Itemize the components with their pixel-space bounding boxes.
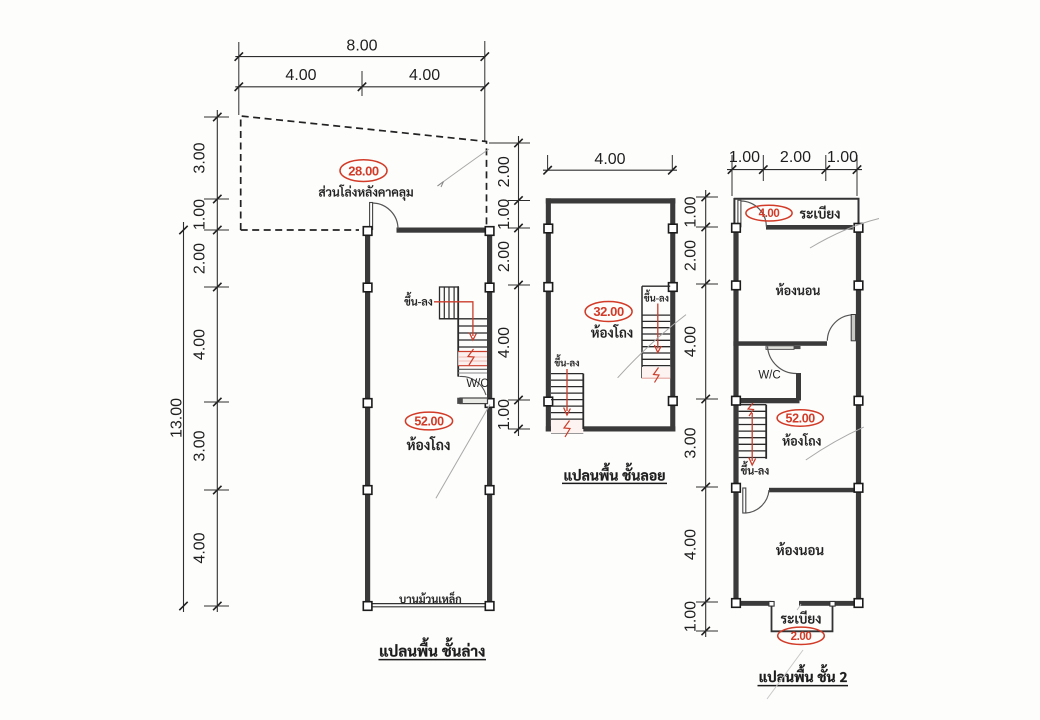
svg-text:1.00: 1.00: [729, 149, 760, 166]
svg-text:2.00: 2.00: [496, 156, 513, 187]
svg-text:4.00: 4.00: [759, 208, 780, 220]
svg-text:3.00: 3.00: [192, 430, 209, 461]
svg-text:1.00: 1.00: [496, 399, 513, 430]
svg-text:4.00: 4.00: [285, 67, 316, 84]
svg-text:1.00: 1.00: [192, 199, 209, 230]
svg-text:4.00: 4.00: [496, 327, 513, 358]
svg-text:2.00: 2.00: [791, 631, 812, 643]
svg-text:2.00: 2.00: [683, 240, 700, 271]
svg-text:52.00: 52.00: [414, 415, 444, 429]
svg-text:3.00: 3.00: [683, 427, 700, 458]
svg-text:W/C: W/C: [758, 370, 780, 382]
svg-text:1.00: 1.00: [827, 149, 858, 166]
svg-text:28.00: 28.00: [348, 163, 379, 178]
svg-text:1.00: 1.00: [496, 199, 513, 230]
svg-text:52.00: 52.00: [786, 412, 816, 426]
svg-text:4.00: 4.00: [409, 67, 440, 84]
svg-text:32.00: 32.00: [593, 304, 624, 319]
svg-text:13.00: 13.00: [169, 398, 186, 438]
svg-text:2.00: 2.00: [496, 241, 513, 272]
svg-text:2.00: 2.00: [780, 149, 811, 166]
svg-text:1.00: 1.00: [683, 601, 700, 632]
svg-text:2.00: 2.00: [192, 243, 209, 274]
svg-text:4.00: 4.00: [594, 151, 625, 168]
svg-text:4.00: 4.00: [683, 326, 700, 357]
svg-text:4.00: 4.00: [192, 329, 209, 360]
svg-text:3.00: 3.00: [192, 142, 209, 173]
svg-text:8.00: 8.00: [346, 38, 377, 55]
svg-text:4.00: 4.00: [683, 529, 700, 560]
svg-text:4.00: 4.00: [192, 532, 209, 563]
svg-text:1.00: 1.00: [683, 196, 700, 227]
svg-text:W/C: W/C: [466, 378, 488, 390]
